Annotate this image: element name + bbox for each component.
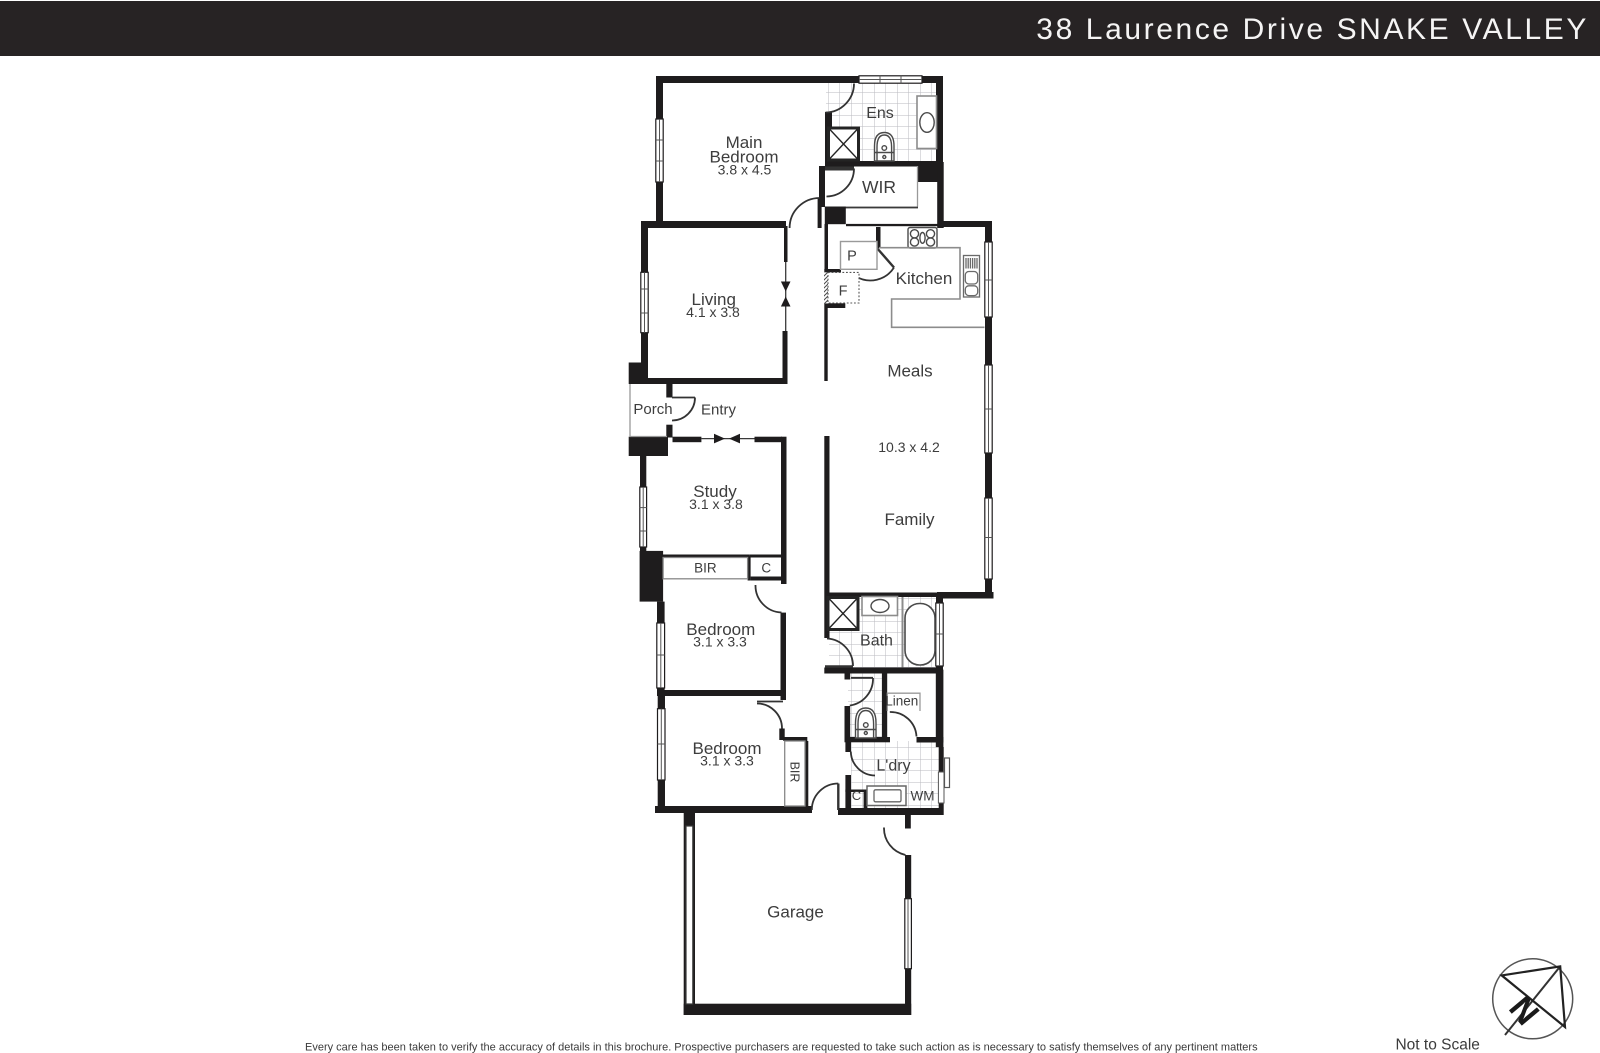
svg-text:Meals: Meals — [887, 362, 932, 381]
svg-text:Every care has been taken to v: Every care has been taken to verify the … — [305, 1042, 1258, 1053]
svg-text:F: F — [839, 284, 848, 300]
svg-text:4.1 x 3.8: 4.1 x 3.8 — [686, 304, 740, 320]
svg-text:38 Laurence Drive SNAKE VALLEY: 38 Laurence Drive SNAKE VALLEY — [1036, 13, 1589, 46]
svg-text:WM: WM — [911, 789, 935, 804]
svg-text:C: C — [852, 788, 861, 803]
svg-text:3.1 x 3.8: 3.1 x 3.8 — [689, 496, 743, 512]
svg-text:BIR: BIR — [787, 762, 801, 783]
svg-text:Family: Family — [884, 510, 935, 529]
svg-text:10.3 x 4.2: 10.3 x 4.2 — [878, 439, 940, 455]
svg-text:Ens: Ens — [866, 105, 894, 122]
svg-text:Not to Scale: Not to Scale — [1395, 1037, 1479, 1053]
svg-text:L'dry: L'dry — [876, 758, 910, 775]
svg-text:C: C — [761, 561, 771, 576]
svg-text:3.1 x 3.3: 3.1 x 3.3 — [700, 753, 754, 769]
svg-text:P: P — [847, 249, 857, 265]
svg-text:Garage: Garage — [767, 903, 824, 922]
svg-text:Entry: Entry — [701, 401, 737, 418]
svg-text:Bath: Bath — [860, 633, 893, 650]
svg-text:Porch: Porch — [633, 401, 672, 418]
svg-text:Kitchen: Kitchen — [896, 269, 953, 288]
svg-text:Linen: Linen — [885, 694, 918, 709]
svg-text:3.8 x 4.5: 3.8 x 4.5 — [718, 162, 772, 178]
svg-text:WIR: WIR — [862, 177, 896, 197]
svg-text:BIR: BIR — [694, 561, 717, 576]
svg-text:3.1 x 3.3: 3.1 x 3.3 — [693, 634, 747, 650]
